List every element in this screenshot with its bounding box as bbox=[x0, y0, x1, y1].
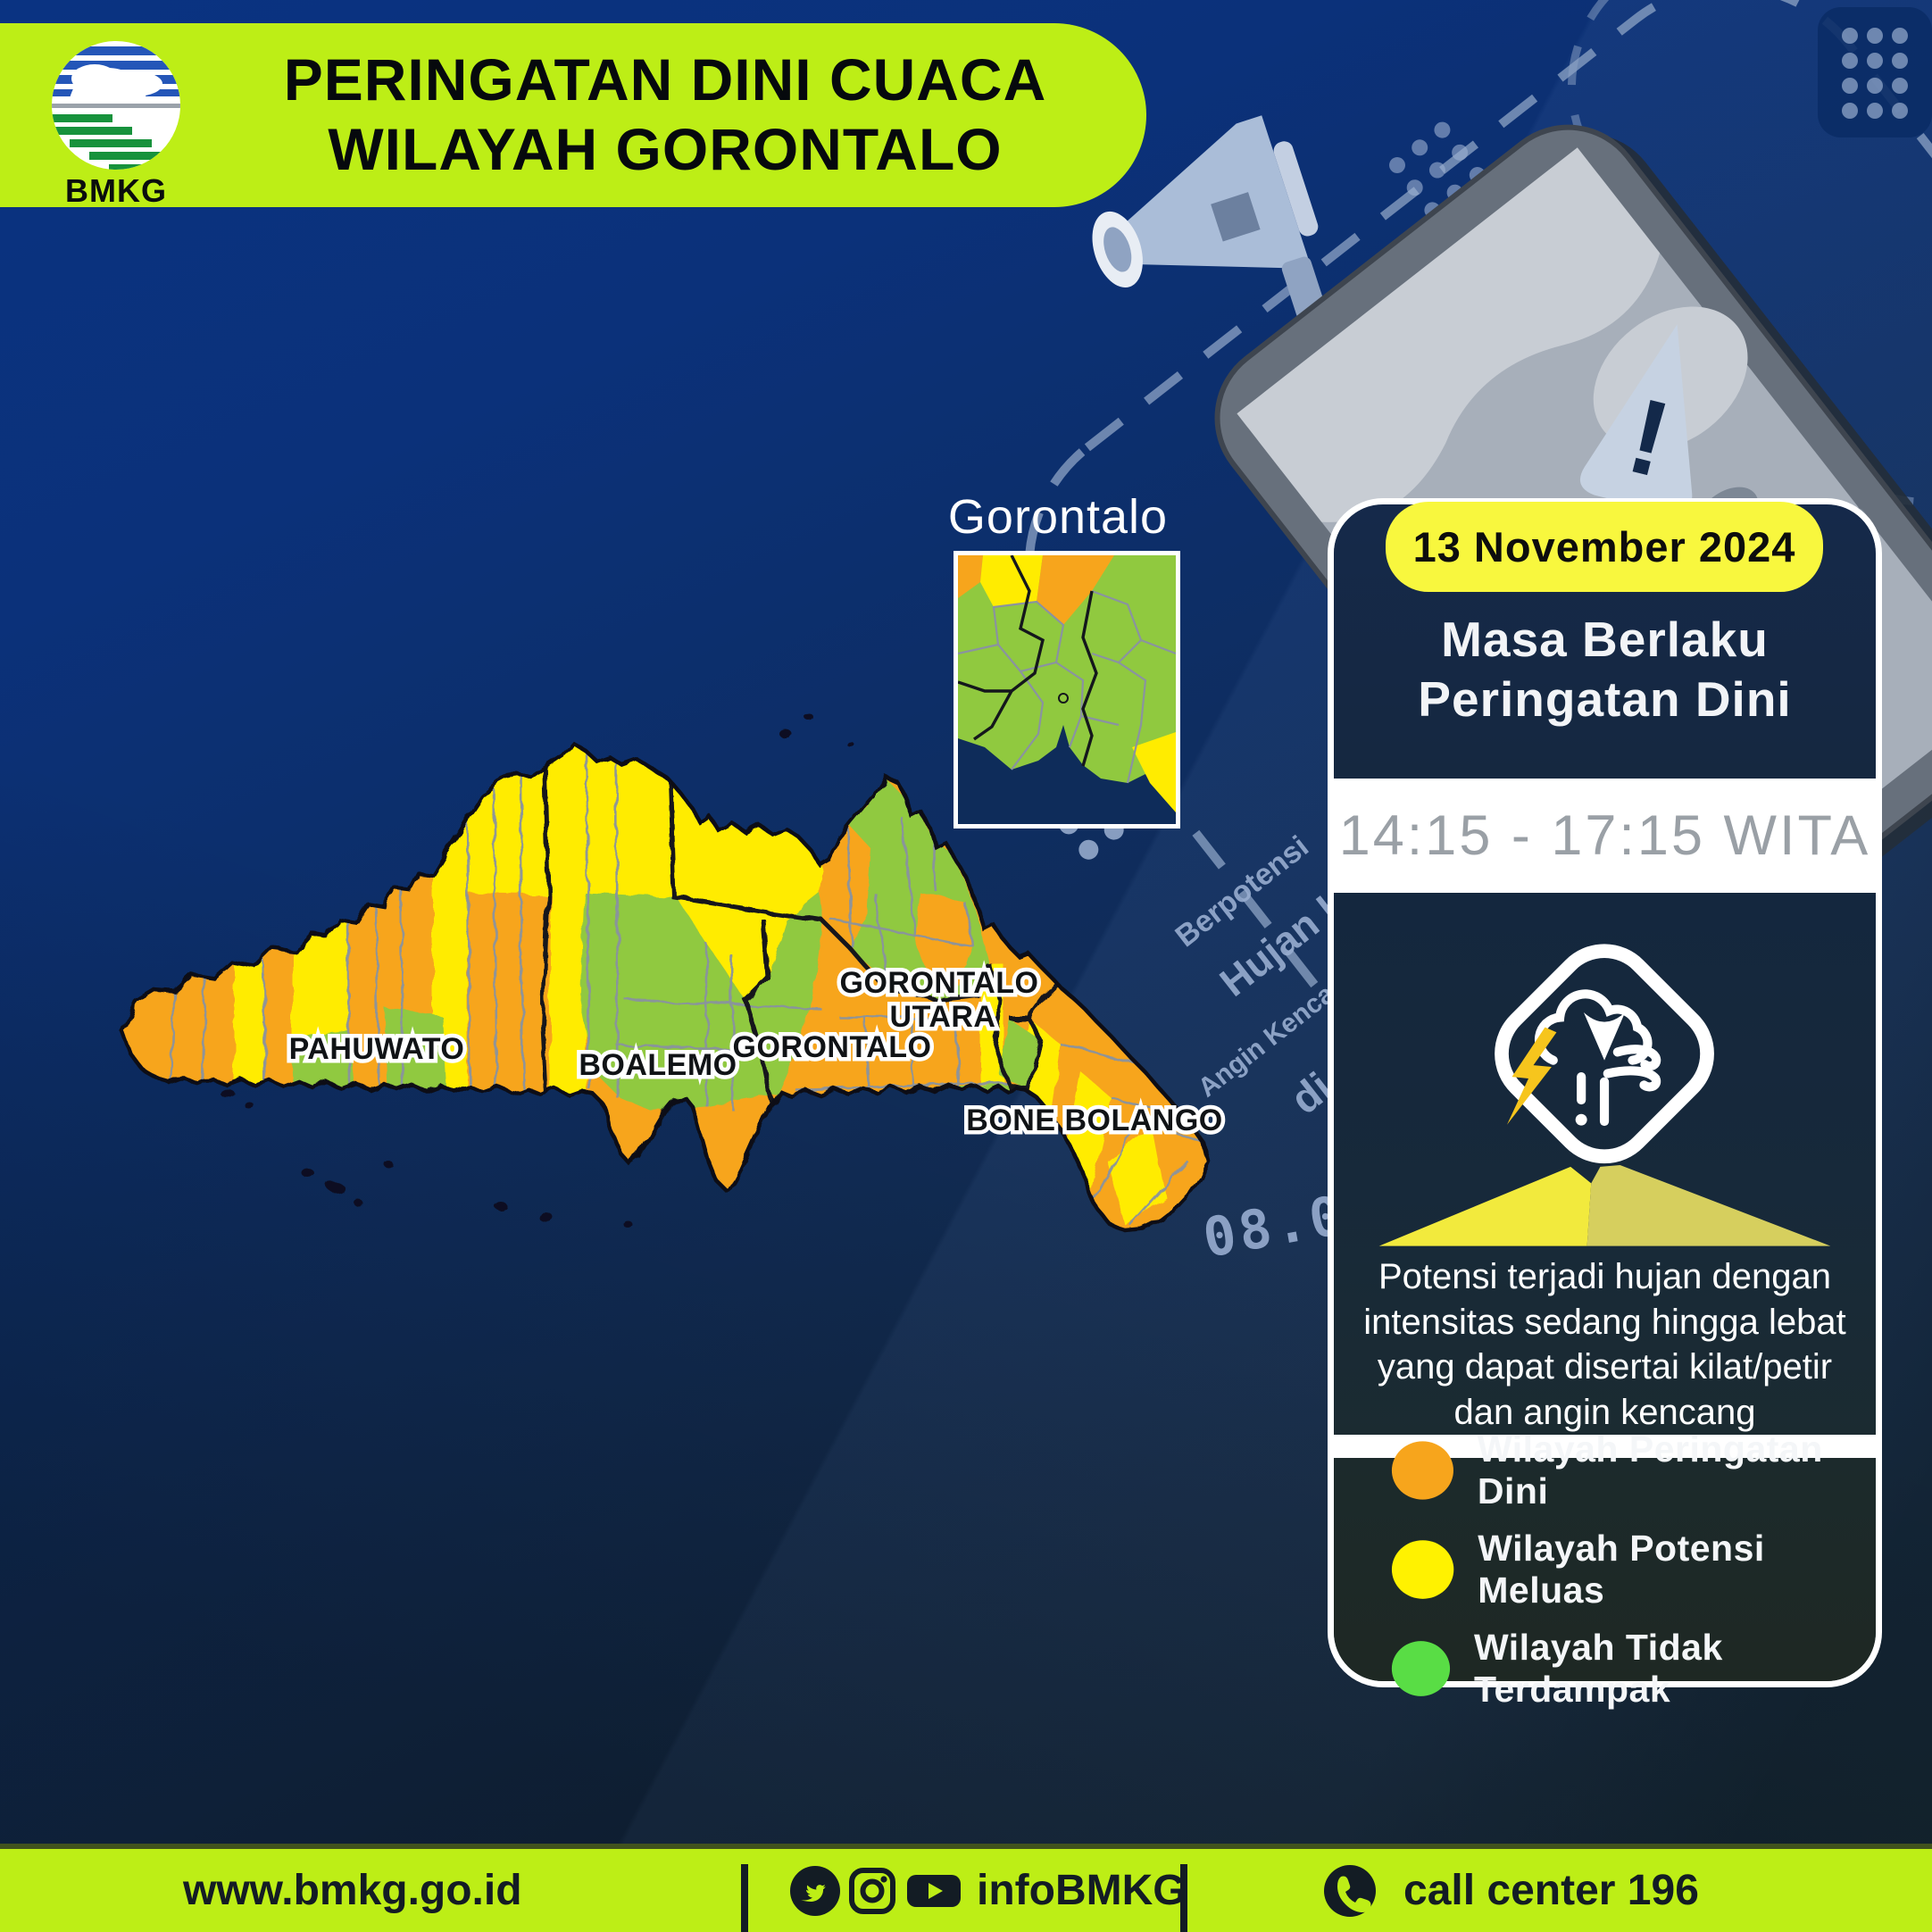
footer-divider bbox=[741, 1864, 748, 1932]
youtube-icon[interactable] bbox=[905, 1849, 962, 1932]
warning-info-card: 13 November 2024 Masa Berlaku Peringatan… bbox=[1328, 498, 1882, 1687]
instagram-icon[interactable] bbox=[846, 1849, 898, 1932]
logo-text: BMKG bbox=[65, 172, 167, 205]
mountain-right bbox=[1587, 1165, 1831, 1246]
inset-title: Gorontalo bbox=[911, 489, 1205, 545]
legend-item-potential: Wilayah Potensi Meluas bbox=[1391, 1528, 1876, 1611]
card-validity-section: 13 November 2024 Masa Berlaku Peringatan… bbox=[1334, 504, 1876, 779]
legend-dot-orange bbox=[1391, 1438, 1454, 1503]
map-label-gorontalo: GORONTALO bbox=[733, 1030, 932, 1064]
legend-item-unaffected: Wilayah Tidak Terdampak bbox=[1391, 1627, 1876, 1711]
date-badge: 13 November 2024 bbox=[1386, 502, 1823, 592]
header-banner: BMKG PERINGATAN DINI CUACA WILAYAH GORON… bbox=[0, 23, 1146, 207]
call-center[interactable]: call center 196 bbox=[1403, 1849, 1699, 1932]
legend: Wilayah Peringatan Dini Wilayah Potensi … bbox=[1334, 1458, 1876, 1681]
mountain-left bbox=[1379, 1167, 1592, 1246]
legend-item-warning: Wilayah Peringatan Dini bbox=[1391, 1428, 1876, 1512]
map-label-gorontalo-utara-2: UTARA bbox=[890, 1000, 996, 1034]
inset-map bbox=[954, 551, 1180, 829]
inset-yellow-nw bbox=[980, 555, 1043, 607]
validity-title: Masa Berlaku Peringatan Dini bbox=[1334, 610, 1876, 729]
infographic-root: Berpotensi Hujan Lebat Angin Kencang di … bbox=[0, 0, 1932, 1932]
map-label-gorontalo-utara: GORONTALO bbox=[840, 966, 1039, 1000]
storm-warning-icon bbox=[1334, 893, 1876, 1247]
map-label-pahuwato: PAHUWATO bbox=[289, 1032, 465, 1066]
legend-dot-yellow bbox=[1391, 1537, 1454, 1602]
page-title: PERINGATAN DINI CUACA WILAYAH GORONTALO bbox=[223, 23, 1107, 207]
footer-bar: www.bmkg.go.id infoBMKG bbox=[0, 1844, 1932, 1932]
twitter-icon[interactable] bbox=[789, 1849, 841, 1932]
warning-description: Potensi terjadi hujan dengan intensitas … bbox=[1353, 1254, 1858, 1435]
map-label-boalemo: BOALEMO bbox=[579, 1048, 737, 1082]
map-label-bone-bolango: BONE BOLANGO bbox=[966, 1103, 1222, 1137]
legend-dot-green bbox=[1391, 1636, 1451, 1701]
phone-icon bbox=[1323, 1849, 1377, 1932]
social-handle[interactable]: infoBMKG bbox=[977, 1849, 1187, 1932]
footer-divider bbox=[1180, 1864, 1187, 1932]
time-range: 14:15 - 17:15 WITA bbox=[1334, 779, 1876, 893]
website-link[interactable]: www.bmkg.go.id bbox=[183, 1849, 522, 1932]
bmkg-logo: BMKG bbox=[43, 36, 189, 205]
card-weather-section: Potensi terjadi hujan dengan intensitas … bbox=[1334, 893, 1876, 1435]
